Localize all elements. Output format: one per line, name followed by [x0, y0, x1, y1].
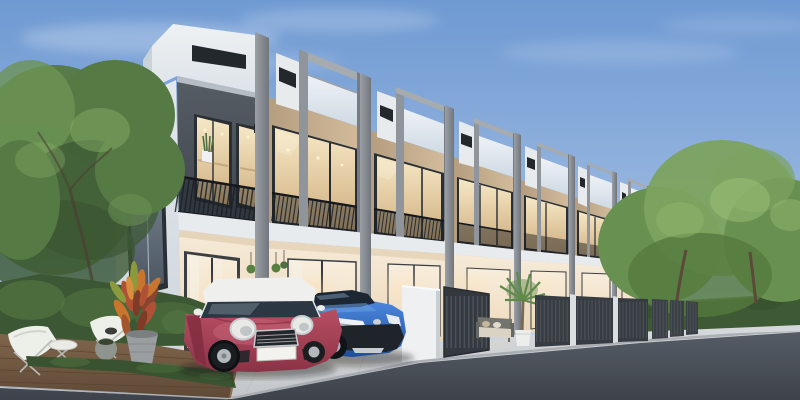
mini-roof — [203, 277, 316, 303]
gate-post — [613, 296, 618, 343]
mini-mirror-left — [194, 309, 203, 316]
gate-post — [570, 294, 576, 346]
mini-headlight-left — [231, 319, 256, 340]
round-planter-pot — [95, 338, 117, 360]
mini-grille — [254, 329, 298, 347]
mini-license-plate — [257, 346, 296, 361]
mini-front-wheel — [208, 340, 240, 372]
toyota-badge — [373, 319, 381, 325]
mini-right-wheel — [303, 341, 325, 363]
scene-canvas — [0, 0, 800, 400]
mini-mirror-right — [317, 305, 325, 311]
suv-skid-plate — [352, 348, 384, 353]
palm-pot — [515, 330, 531, 346]
closed-entry-gates — [535, 294, 648, 347]
white-fence-wall — [402, 286, 440, 362]
rendered-scene — [0, 0, 800, 400]
right-metal-fence — [652, 299, 698, 339]
